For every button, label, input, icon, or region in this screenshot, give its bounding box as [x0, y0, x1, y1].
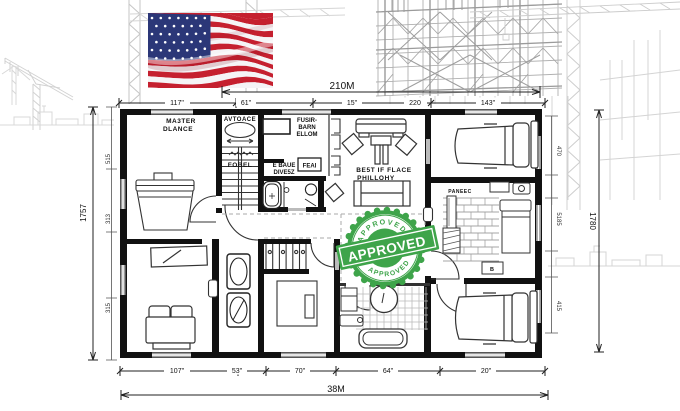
svg-text:5185: 5185	[555, 212, 561, 226]
svg-text:PHILLOHY: PHILLOHY	[357, 175, 395, 182]
svg-text:E BAUE: E BAUE	[273, 163, 296, 169]
svg-text:AVTOACE: AVTOACE	[224, 117, 256, 123]
svg-text:DLANCE: DLANCE	[163, 126, 193, 133]
svg-text:515: 515	[106, 153, 112, 164]
svg-text:MA3TER: MA3TER	[166, 118, 196, 125]
svg-text:15": 15"	[347, 100, 358, 107]
svg-text:107": 107"	[170, 368, 185, 375]
svg-text:220: 220	[409, 100, 421, 107]
svg-text:BARN: BARN	[298, 125, 315, 131]
svg-text:38M: 38M	[327, 384, 345, 394]
svg-text:FEAI: FEAI	[303, 164, 317, 170]
svg-text:DIVE5Z: DIVE5Z	[273, 170, 294, 176]
svg-text:FOBEL: FOBEL	[228, 162, 253, 169]
svg-text:1780: 1780	[588, 212, 597, 230]
svg-text:20": 20"	[481, 368, 492, 375]
svg-text:53": 53"	[232, 368, 243, 375]
svg-text:BE5T IF FLACE: BE5T IF FLACE	[356, 167, 412, 174]
svg-text:315: 315	[106, 302, 112, 313]
svg-text:61": 61"	[241, 100, 252, 107]
svg-text:313: 313	[106, 213, 112, 224]
svg-text:415: 415	[555, 301, 561, 312]
svg-text:64": 64"	[383, 368, 394, 375]
svg-text:PANEEC: PANEEC	[448, 189, 471, 195]
svg-text:210M: 210M	[329, 81, 354, 92]
svg-text:143": 143"	[481, 100, 496, 107]
svg-text:70": 70"	[295, 368, 306, 375]
svg-text:ELLOM: ELLOM	[297, 132, 318, 138]
svg-text:470: 470	[555, 146, 561, 157]
svg-text:117": 117"	[170, 100, 184, 107]
svg-text:B: B	[490, 267, 494, 273]
svg-text:1757: 1757	[79, 204, 88, 222]
svg-text:FUSIR-: FUSIR-	[297, 118, 317, 124]
